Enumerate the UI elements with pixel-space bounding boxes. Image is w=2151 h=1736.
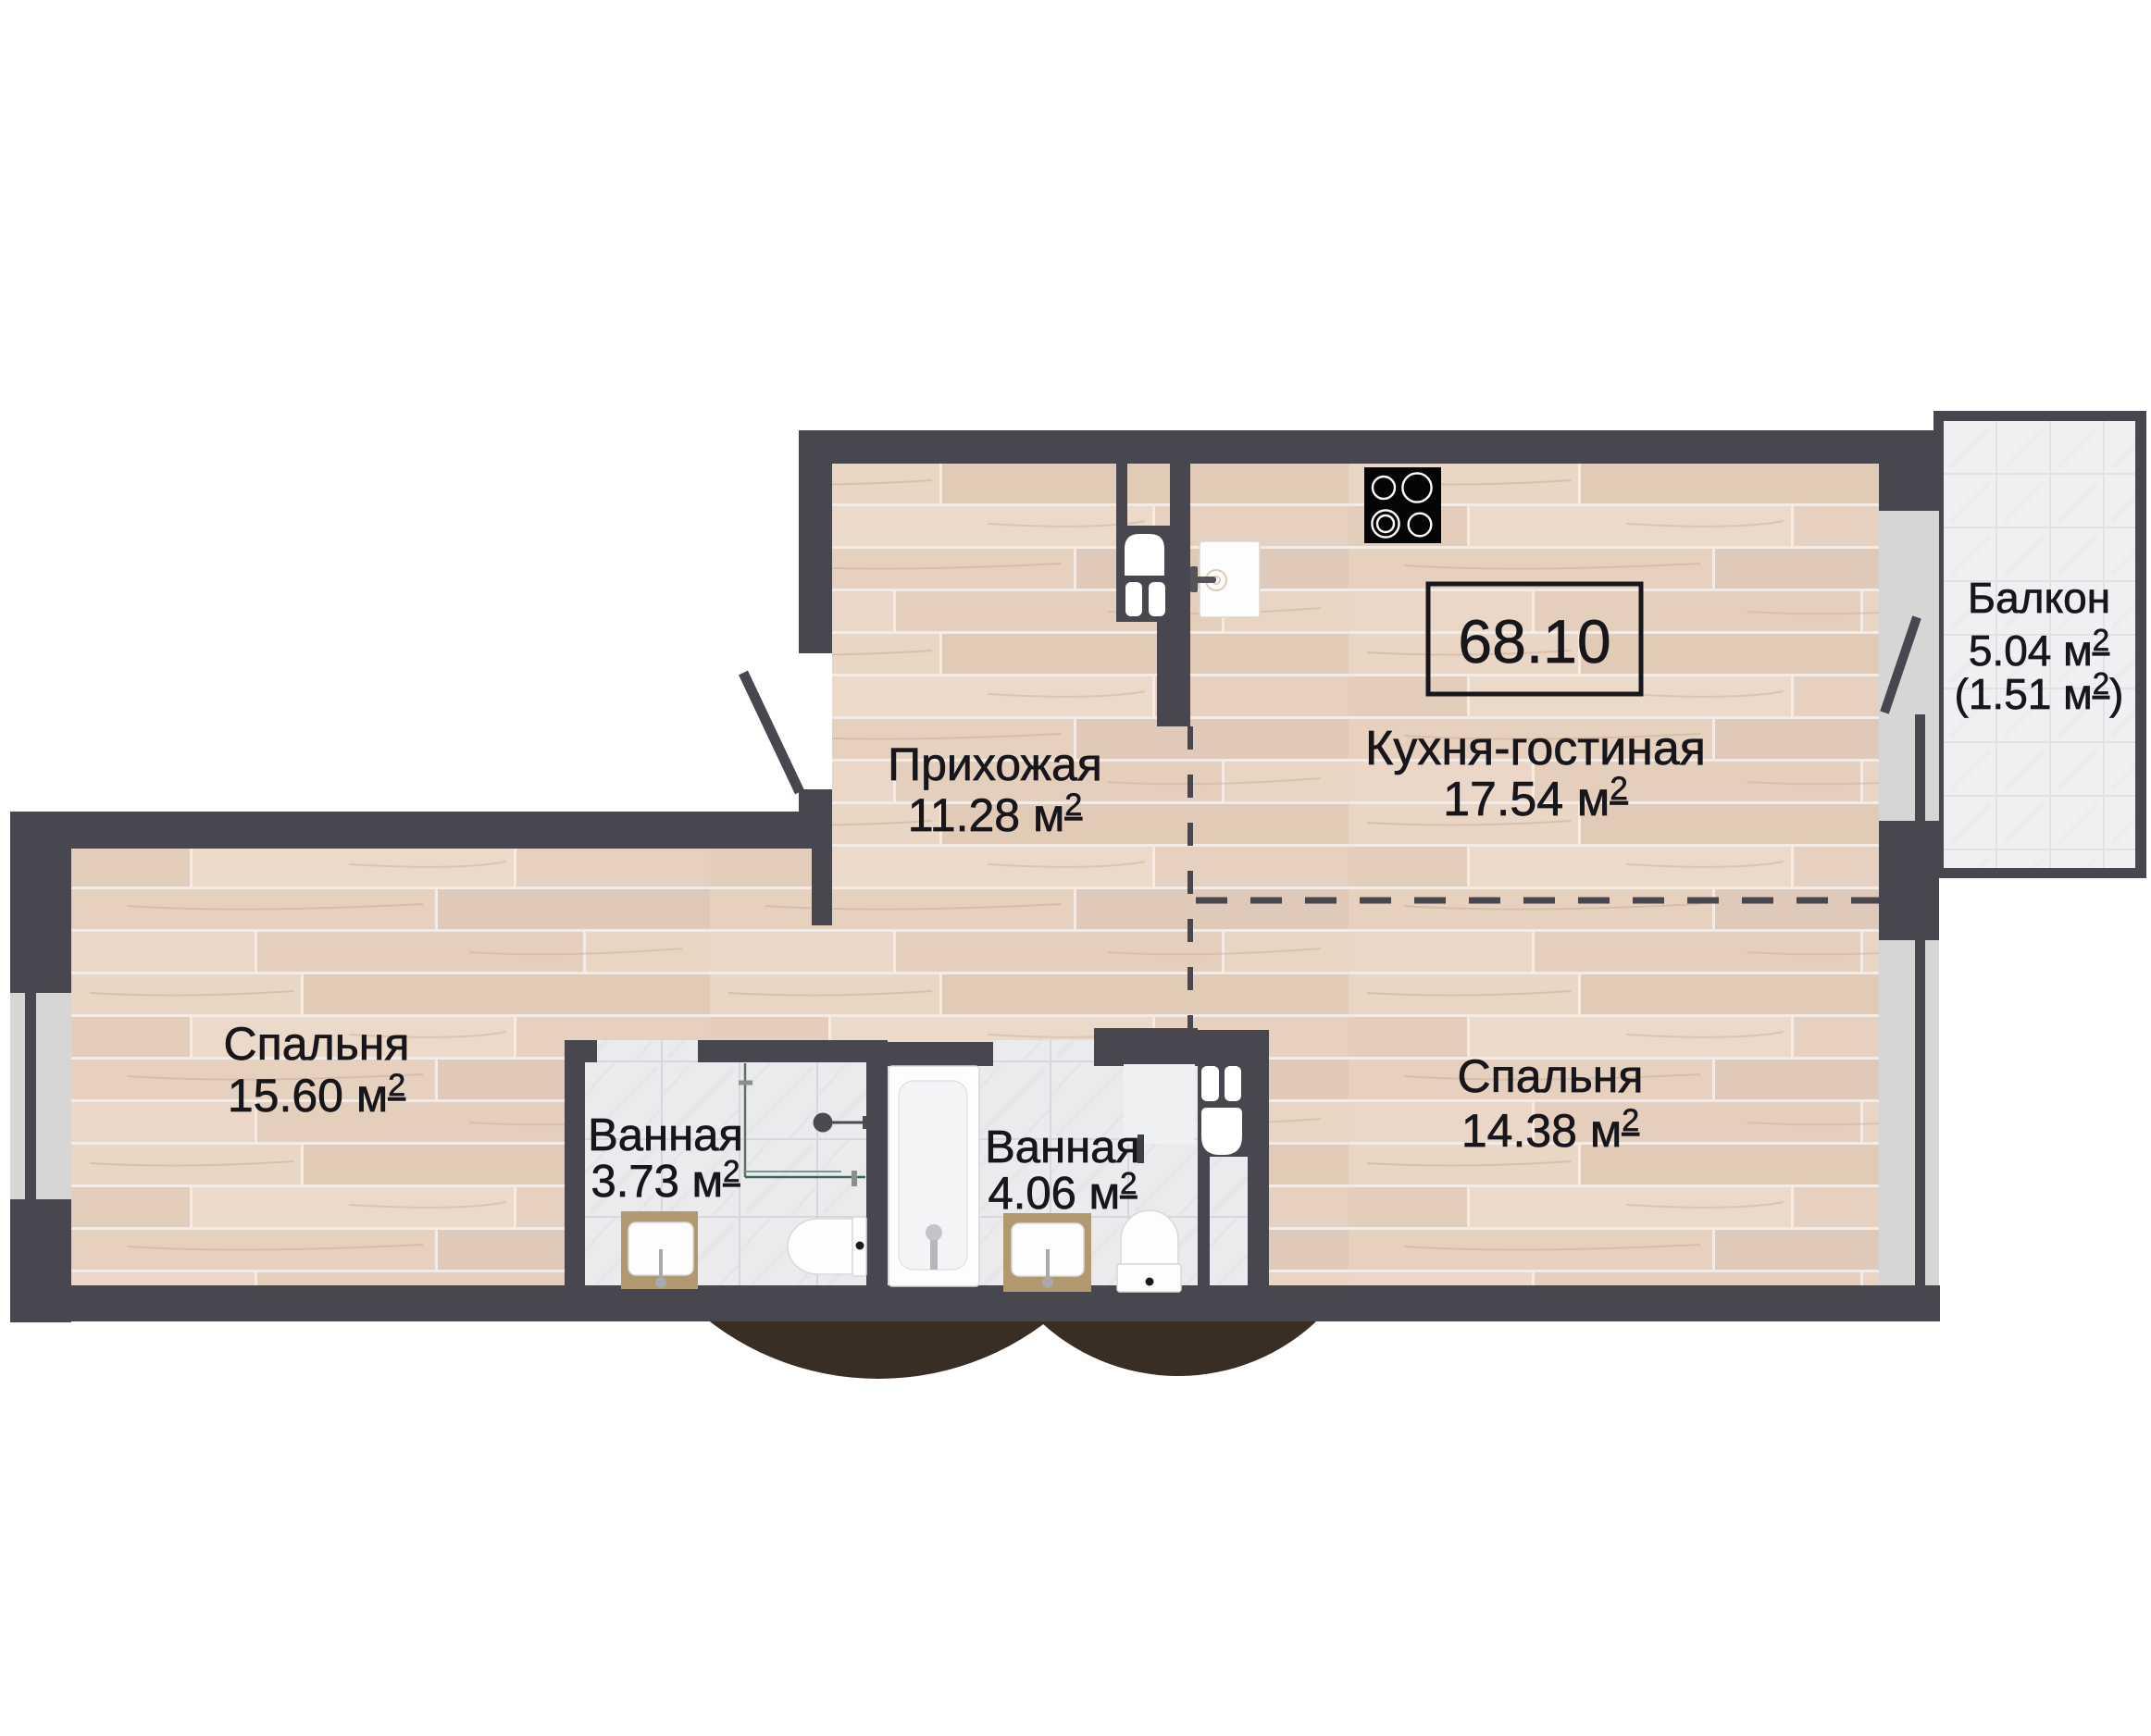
svg-text:11.28 м2: 11.28 м2 [908,787,1083,841]
svg-text:Ванная: Ванная [985,1122,1140,1172]
svg-text:4.06 м2: 4.06 м2 [988,1166,1137,1219]
svg-text:5.04 м2: 5.04 м2 [1969,623,2109,675]
svg-text:Ванная: Ванная [588,1110,743,1160]
svg-text:Спальня: Спальня [1458,1050,1644,1102]
svg-text:Прихожая: Прихожая [888,738,1102,790]
svg-text:Кухня-гостиная: Кухня-гостиная [1365,722,1706,775]
svg-text:Балкон: Балкон [1968,574,2110,622]
svg-text:68.10: 68.10 [1458,607,1610,676]
svg-text:3.73 м2: 3.73 м2 [591,1154,740,1207]
svg-text:15.60 м2: 15.60 м2 [228,1068,405,1122]
svg-text:Спальня: Спальня [224,1018,410,1070]
svg-text:14.38 м2: 14.38 м2 [1461,1103,1639,1157]
svg-text:17.54 м2: 17.54 м2 [1443,771,1628,826]
